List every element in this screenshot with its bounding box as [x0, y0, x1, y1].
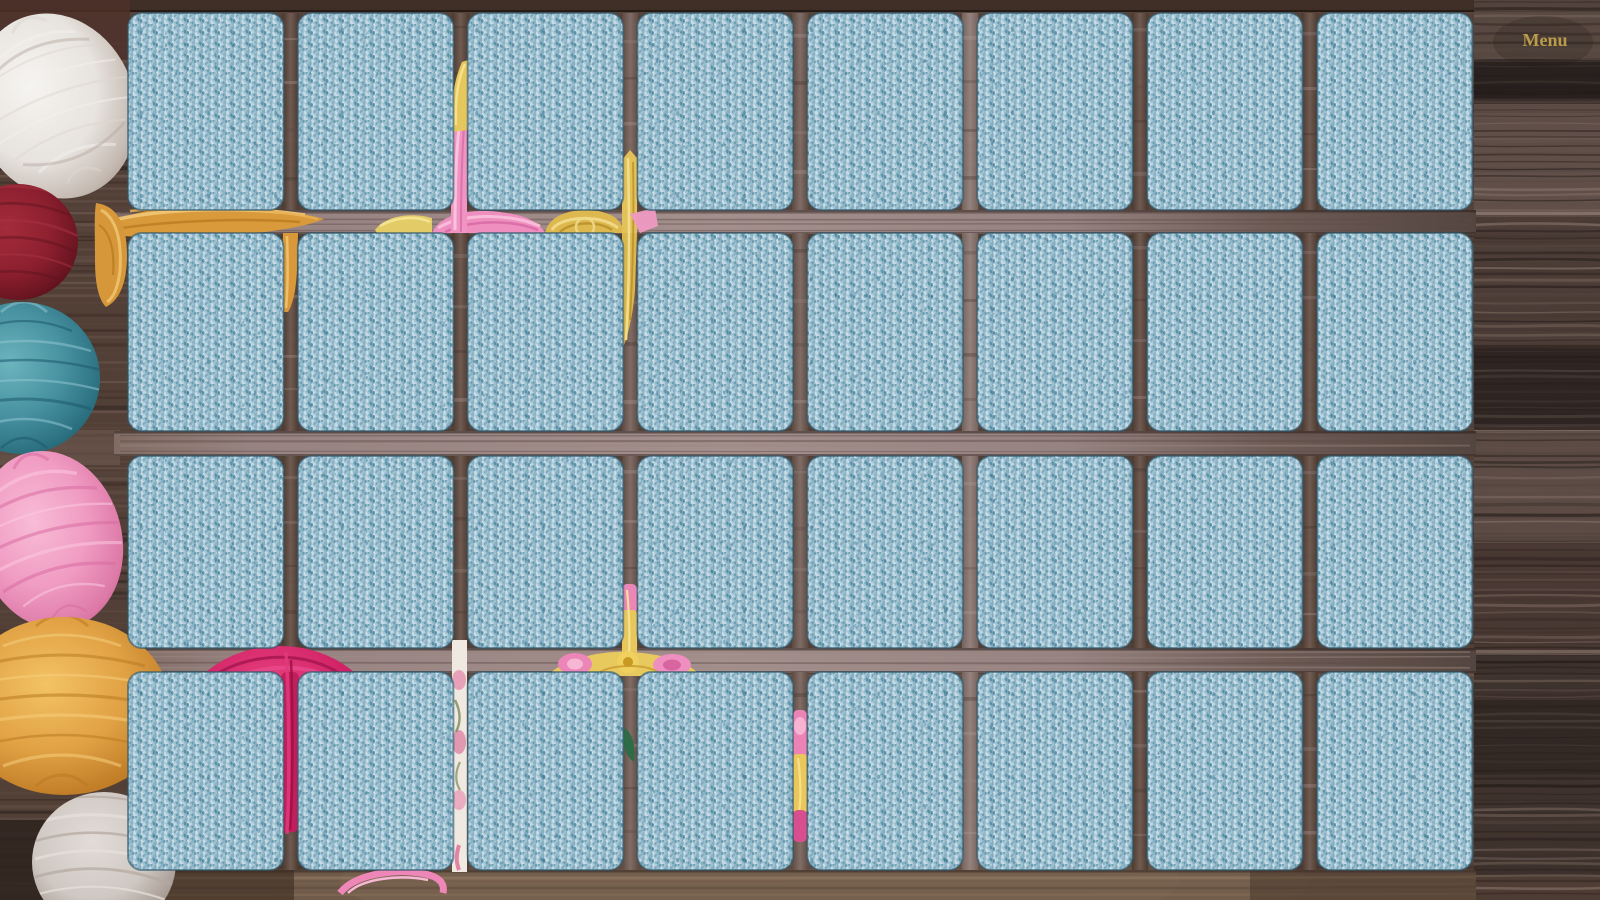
svg-text:Menu: Menu [1523, 30, 1568, 50]
